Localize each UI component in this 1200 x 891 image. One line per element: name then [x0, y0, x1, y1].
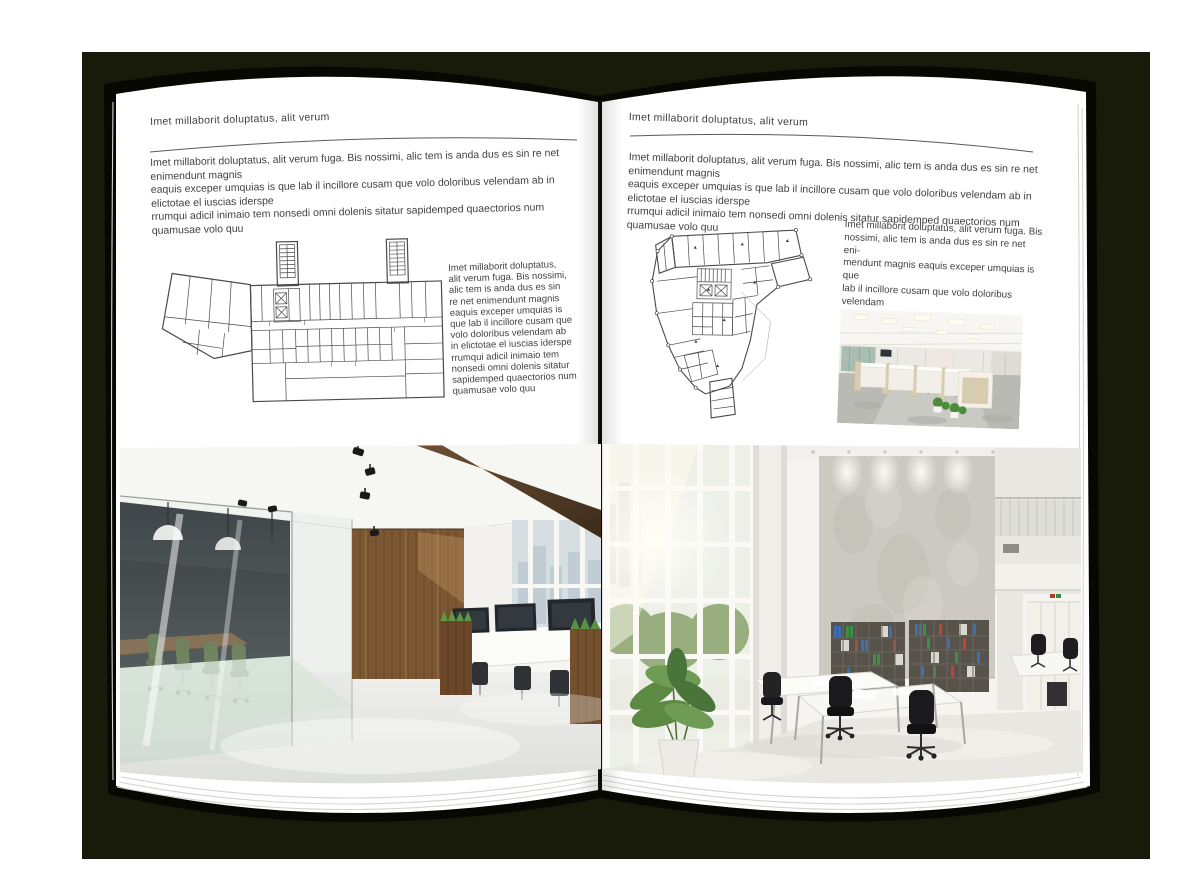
plan-mid-rooms [251, 327, 392, 363]
plan-top-rooms [261, 281, 426, 321]
left-side-text: Imet millaborit doluptatus, alit verum f… [448, 258, 583, 397]
photo-office-white-loft [603, 444, 1081, 802]
right-photo-small [837, 309, 1023, 429]
photo-office-wood-glass [120, 444, 601, 802]
plan-outer-walls [650, 228, 811, 419]
plan-door-ticks [269, 317, 425, 368]
right-floor-plan [643, 220, 840, 421]
mezzanine [995, 444, 1081, 594]
right-photo-large [603, 444, 1081, 802]
white-column [753, 444, 787, 776]
plan-wing-rooms [163, 275, 252, 358]
plan-inner-rooms [655, 264, 773, 410]
photo-office-cubicles [837, 309, 1023, 429]
plan-elevator-core [273, 288, 300, 322]
left-floor-plan [152, 223, 452, 418]
plan-corridor [251, 317, 442, 331]
plan-lot-line [740, 291, 771, 380]
window-wall [603, 444, 755, 776]
plan-bottom-rooms [251, 326, 444, 402]
floor-plan-drawing-right [643, 220, 840, 421]
floor-plan-drawing-left [152, 223, 452, 418]
left-photo [120, 444, 601, 802]
magazine-mockup-canvas: Imet millaborit doluptatus, alit verum I… [0, 0, 1200, 891]
plan-stair-elevator-core [697, 269, 731, 299]
